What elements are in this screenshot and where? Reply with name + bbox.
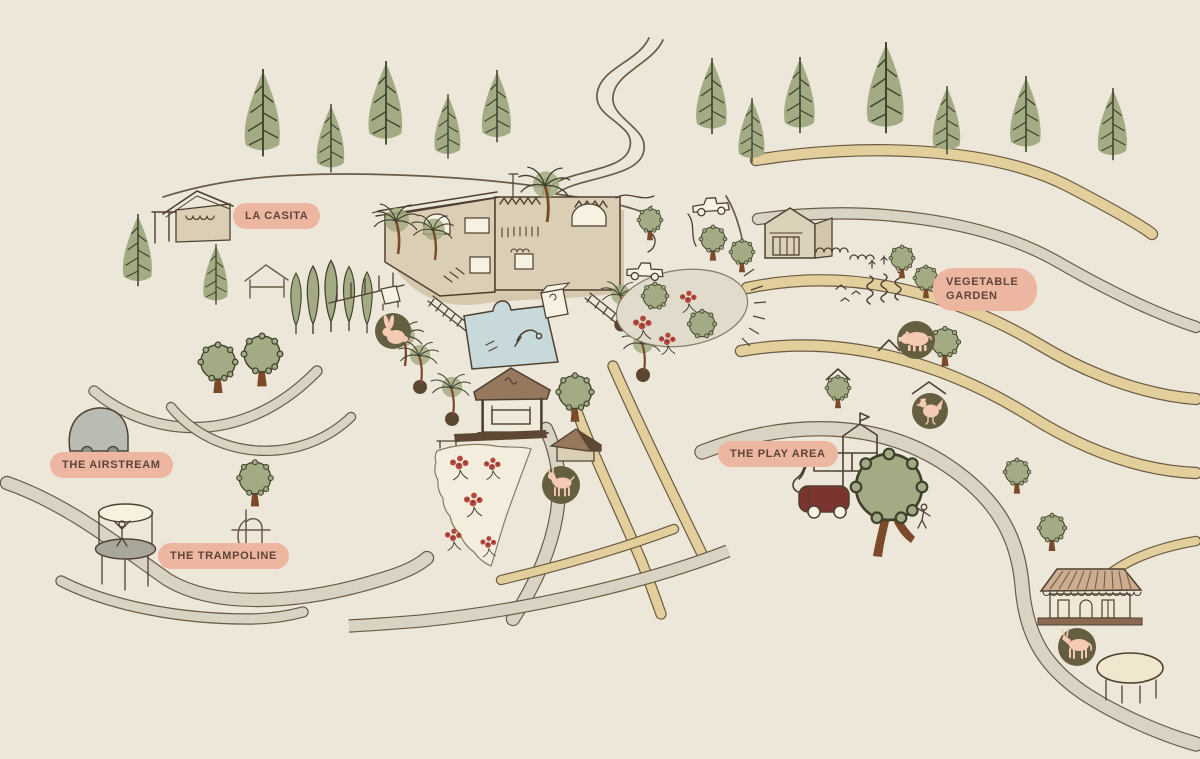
map-label-la-casita[interactable]: LA CASITA bbox=[233, 203, 320, 229]
trampoline-cylinder bbox=[96, 504, 156, 590]
chicken-icon bbox=[912, 393, 948, 429]
rabbit-icon bbox=[375, 313, 411, 349]
flower-garden bbox=[435, 444, 531, 566]
pig-icon bbox=[897, 321, 935, 359]
trampoline bbox=[1097, 653, 1163, 703]
cypress-row bbox=[291, 261, 372, 335]
small-hut bbox=[551, 429, 601, 461]
property-map: LA CASITA VEGETABLE GARDEN THE AIRSTREAM… bbox=[0, 0, 1200, 759]
la-casita-building bbox=[152, 191, 233, 243]
map-label-vegetable-garden[interactable]: VEGETABLE GARDEN bbox=[933, 268, 1037, 311]
map-label-the-play-area[interactable]: THE PLAY AREA bbox=[718, 441, 838, 467]
airstream bbox=[69, 408, 128, 458]
shed bbox=[245, 265, 288, 298]
bus bbox=[799, 486, 849, 518]
car bbox=[627, 262, 664, 280]
main-house bbox=[376, 174, 624, 305]
play-tree bbox=[851, 449, 928, 557]
donkey-icon bbox=[1058, 628, 1096, 666]
climbing-frame bbox=[232, 510, 270, 546]
olive-trees bbox=[198, 207, 1067, 551]
map-illustration bbox=[0, 0, 1200, 759]
goat-icon bbox=[542, 466, 580, 504]
car bbox=[692, 197, 729, 217]
walking-figure bbox=[917, 504, 930, 528]
stable bbox=[1038, 569, 1142, 625]
pine-forest bbox=[123, 42, 1127, 305]
map-label-the-airstream[interactable]: THE AIRSTREAM bbox=[50, 452, 173, 478]
map-label-the-trampoline[interactable]: THE TRAMPOLINE bbox=[158, 543, 289, 569]
